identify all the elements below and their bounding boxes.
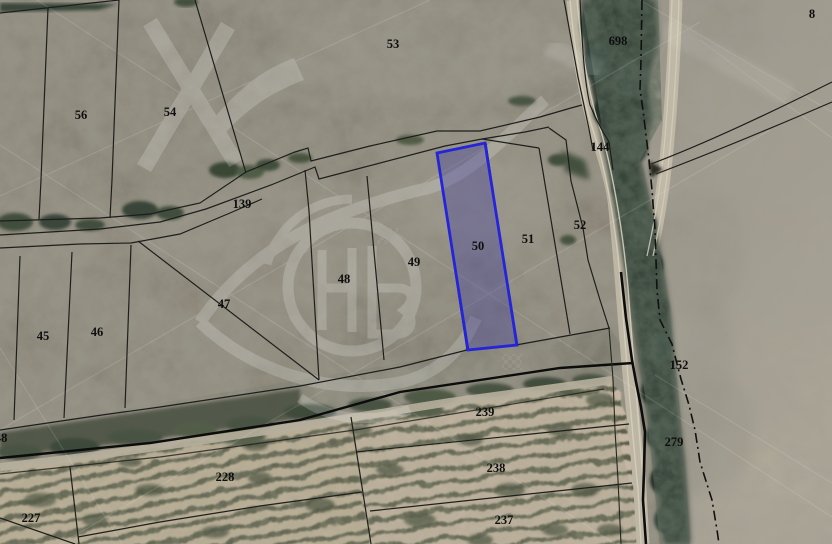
svg-text:52: 52 — [574, 218, 587, 232]
svg-text:49: 49 — [408, 255, 421, 269]
svg-text:238: 238 — [487, 461, 506, 475]
svg-text:48: 48 — [338, 272, 351, 286]
svg-text:8: 8 — [809, 7, 815, 21]
svg-text:56: 56 — [75, 108, 88, 122]
svg-text:279: 279 — [665, 435, 684, 449]
svg-text:46: 46 — [91, 325, 104, 339]
svg-text:47: 47 — [218, 297, 231, 311]
svg-text:239: 239 — [476, 405, 495, 419]
svg-text:54: 54 — [164, 105, 177, 119]
svg-text:227: 227 — [22, 511, 41, 525]
svg-text:152: 152 — [670, 358, 689, 372]
svg-text:51: 51 — [522, 232, 535, 246]
svg-text:698: 698 — [609, 34, 628, 48]
svg-text:53: 53 — [387, 37, 400, 51]
svg-text:50: 50 — [472, 239, 485, 253]
svg-text:148: 148 — [0, 431, 7, 445]
svg-text:139: 139 — [233, 197, 252, 211]
svg-text:45: 45 — [37, 329, 50, 343]
svg-text:228: 228 — [216, 470, 235, 484]
svg-text:144: 144 — [591, 140, 611, 154]
svg-text:237: 237 — [495, 513, 514, 527]
